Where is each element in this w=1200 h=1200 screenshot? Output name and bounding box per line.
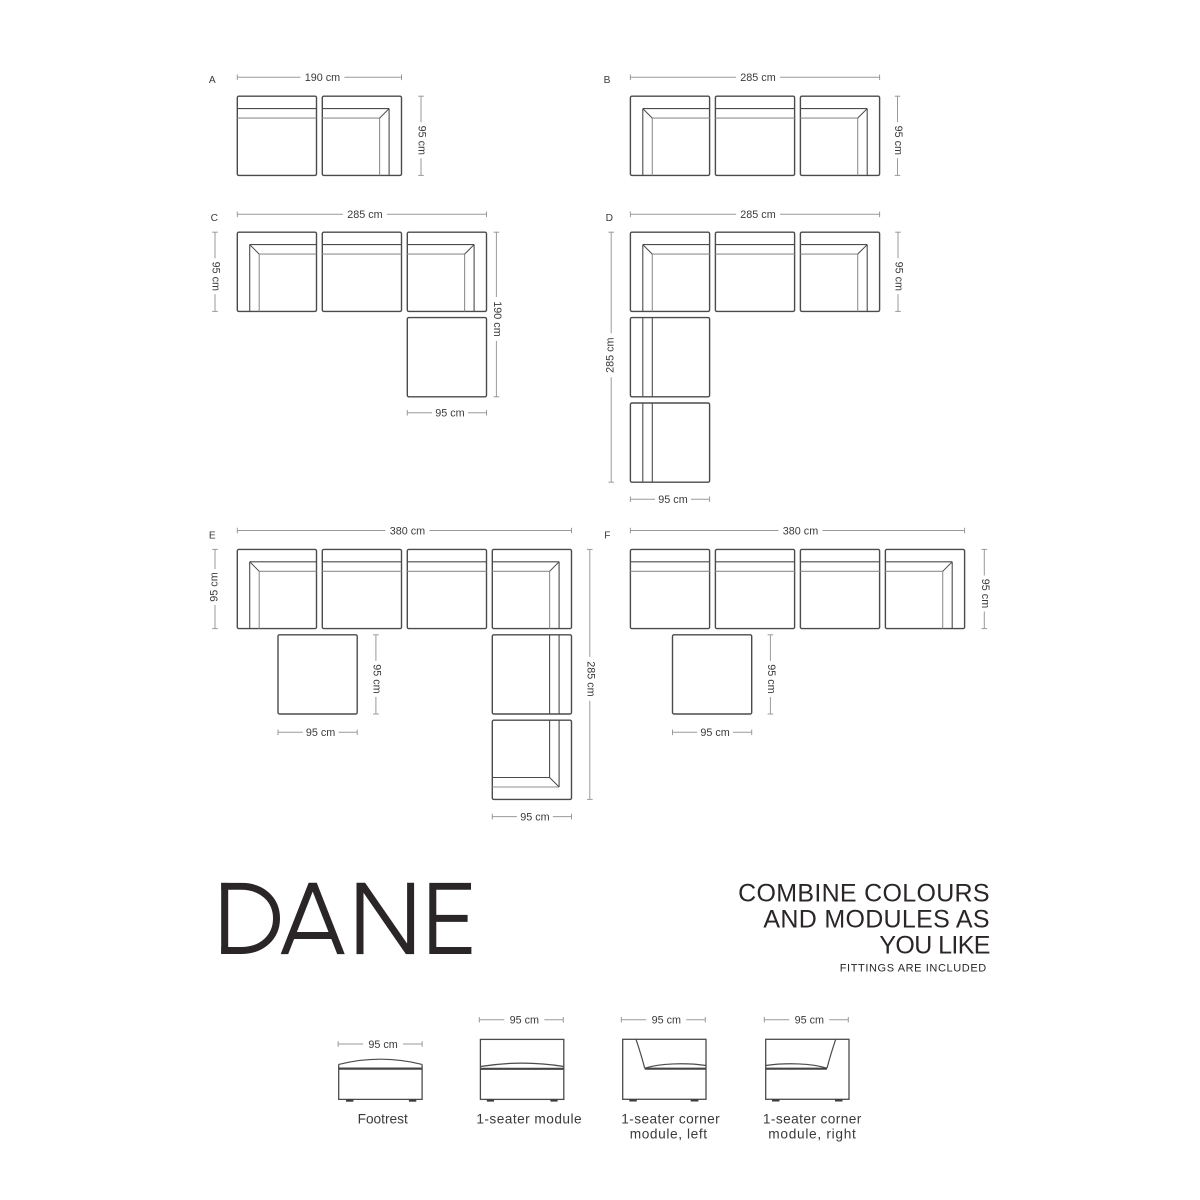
svg-text:380 cm: 380 cm [783, 525, 818, 537]
svg-text:AND MODULES AS: AND MODULES AS [763, 905, 989, 933]
svg-text:95 cm: 95 cm [416, 126, 428, 155]
svg-text:B: B [604, 75, 611, 86]
svg-text:module, left: module, left [630, 1127, 708, 1142]
svg-text:95 cm: 95 cm [893, 262, 905, 291]
svg-text:285 cm: 285 cm [347, 209, 382, 221]
svg-text:95 cm: 95 cm [435, 408, 464, 420]
svg-text:YOU LIKE: YOU LIKE [879, 931, 990, 959]
svg-text:E: E [209, 531, 216, 542]
svg-text:285 cm: 285 cm [584, 661, 596, 696]
svg-text:95 cm: 95 cm [652, 1015, 681, 1027]
svg-text:95 cm: 95 cm [208, 572, 220, 601]
svg-text:285 cm: 285 cm [740, 209, 775, 221]
svg-text:95 cm: 95 cm [979, 579, 991, 608]
svg-text:FITTINGS ARE INCLUDED: FITTINGS ARE INCLUDED [840, 962, 987, 974]
svg-text:D: D [606, 213, 613, 224]
svg-text:285 cm: 285 cm [740, 72, 775, 84]
svg-text:1-seater module: 1-seater module [476, 1112, 582, 1127]
svg-text:95 cm: 95 cm [520, 811, 549, 823]
svg-text:95 cm: 95 cm [210, 262, 222, 291]
svg-text:95 cm: 95 cm [510, 1015, 539, 1027]
svg-text:190 cm: 190 cm [491, 301, 503, 336]
svg-text:190 cm: 190 cm [305, 72, 340, 84]
svg-text:380 cm: 380 cm [390, 525, 425, 537]
svg-text:95 cm: 95 cm [765, 664, 777, 693]
svg-text:95 cm: 95 cm [306, 727, 335, 739]
svg-text:95 cm: 95 cm [700, 727, 729, 739]
svg-text:COMBINE COLOURS: COMBINE COLOURS [738, 880, 990, 908]
svg-text:95 cm: 95 cm [370, 664, 382, 693]
svg-text:95 cm: 95 cm [658, 494, 687, 506]
svg-text:A: A [209, 75, 216, 86]
svg-text:1-seater corner: 1-seater corner [763, 1112, 862, 1127]
svg-text:95 cm: 95 cm [368, 1039, 397, 1051]
svg-text:F: F [604, 531, 610, 542]
svg-text:285 cm: 285 cm [605, 337, 617, 372]
svg-text:C: C [211, 213, 218, 224]
svg-text:Footrest: Footrest [358, 1112, 408, 1127]
svg-text:1-seater corner: 1-seater corner [621, 1112, 720, 1127]
svg-text:95 cm: 95 cm [892, 126, 904, 155]
svg-text:95 cm: 95 cm [795, 1015, 824, 1027]
svg-text:module, right: module, right [768, 1127, 856, 1142]
